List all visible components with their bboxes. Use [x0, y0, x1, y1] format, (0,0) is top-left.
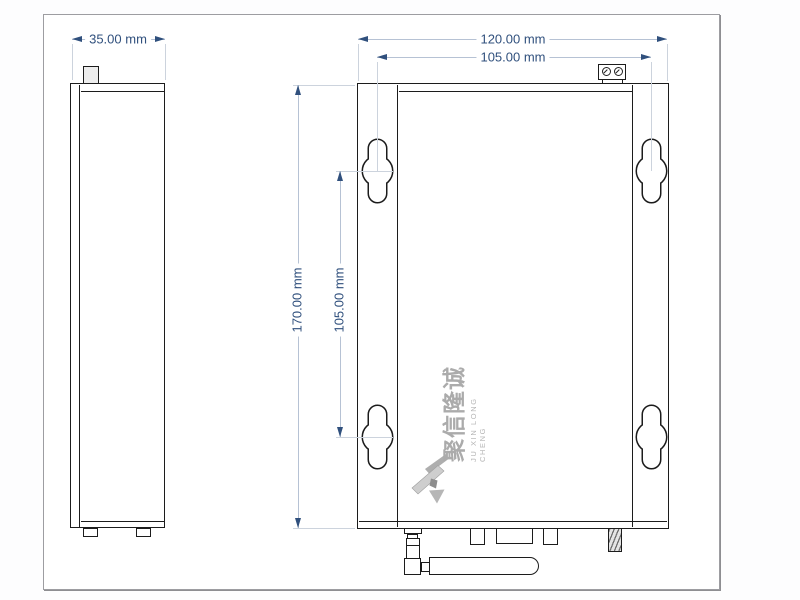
arrowhead-icon — [641, 54, 651, 60]
watermark-company-name-en: JU XIN LONG CHENG — [469, 362, 487, 462]
dim-label-hole-spacing-horizontal: 105.00 mm — [476, 50, 549, 65]
serial-jack-post-left — [470, 528, 485, 545]
antenna-thread-stud — [608, 528, 622, 552]
side-foot-left — [83, 528, 98, 537]
side-body — [70, 83, 165, 528]
side-foot-right — [136, 528, 151, 537]
side-flange-edge-line — [79, 85, 80, 527]
extension-line — [165, 44, 166, 80]
arrowhead-icon — [358, 36, 368, 42]
hole-centerline — [336, 171, 393, 172]
terminal-screw-icon — [614, 67, 623, 76]
dim-label-side-width: 35.00 mm — [85, 32, 151, 47]
side-antenna-stub — [83, 66, 99, 84]
side-bottom-lip-line — [81, 521, 164, 522]
hole-centerline — [377, 62, 378, 171]
hole-centerline — [651, 62, 652, 171]
serial-jack-post-right — [543, 528, 558, 545]
watermark-text: 聚信隆诚 JU XIN LONG CHENG — [443, 362, 481, 462]
arrowhead-icon — [377, 54, 387, 60]
sma-elbow — [404, 558, 421, 575]
arrowhead-icon — [337, 171, 343, 181]
arrowhead-icon — [155, 36, 165, 42]
front-top-lip-line — [399, 91, 632, 92]
arrowhead-icon — [337, 427, 343, 437]
hole-centerline — [336, 437, 393, 438]
arrowhead-icon — [295, 518, 301, 528]
antenna-whip — [429, 557, 539, 575]
sma-body — [406, 538, 420, 559]
side-top-lip-line — [81, 91, 164, 92]
right-flange-line — [632, 85, 633, 527]
dim-label-front-height: 170.00 mm — [290, 263, 305, 336]
front-body — [357, 83, 669, 529]
arrowhead-icon — [657, 36, 667, 42]
watermark-company-name-cn: 聚信隆诚 — [443, 362, 467, 462]
terminal-screw-icon — [602, 67, 611, 76]
extension-line — [293, 528, 355, 529]
extension-line — [72, 44, 73, 80]
serial-connector — [496, 528, 533, 544]
arrowhead-icon — [72, 36, 82, 42]
extension-line — [293, 85, 355, 86]
extension-line — [358, 44, 359, 81]
drawing-canvas: 35.00 mm 120.00 mm 105.00 mm 170.00 mm 1… — [0, 0, 800, 600]
dim-label-hole-spacing-vertical: 105.00 mm — [332, 263, 347, 336]
mounting-keyhole-bottom-right — [635, 404, 668, 470]
left-flange-line — [397, 85, 398, 527]
dim-label-front-width: 120.00 mm — [476, 32, 549, 47]
sma-body-seam — [407, 545, 419, 546]
front-bottom-lip-line — [359, 521, 668, 522]
extension-line — [667, 44, 668, 81]
arrowhead-icon — [295, 85, 301, 95]
